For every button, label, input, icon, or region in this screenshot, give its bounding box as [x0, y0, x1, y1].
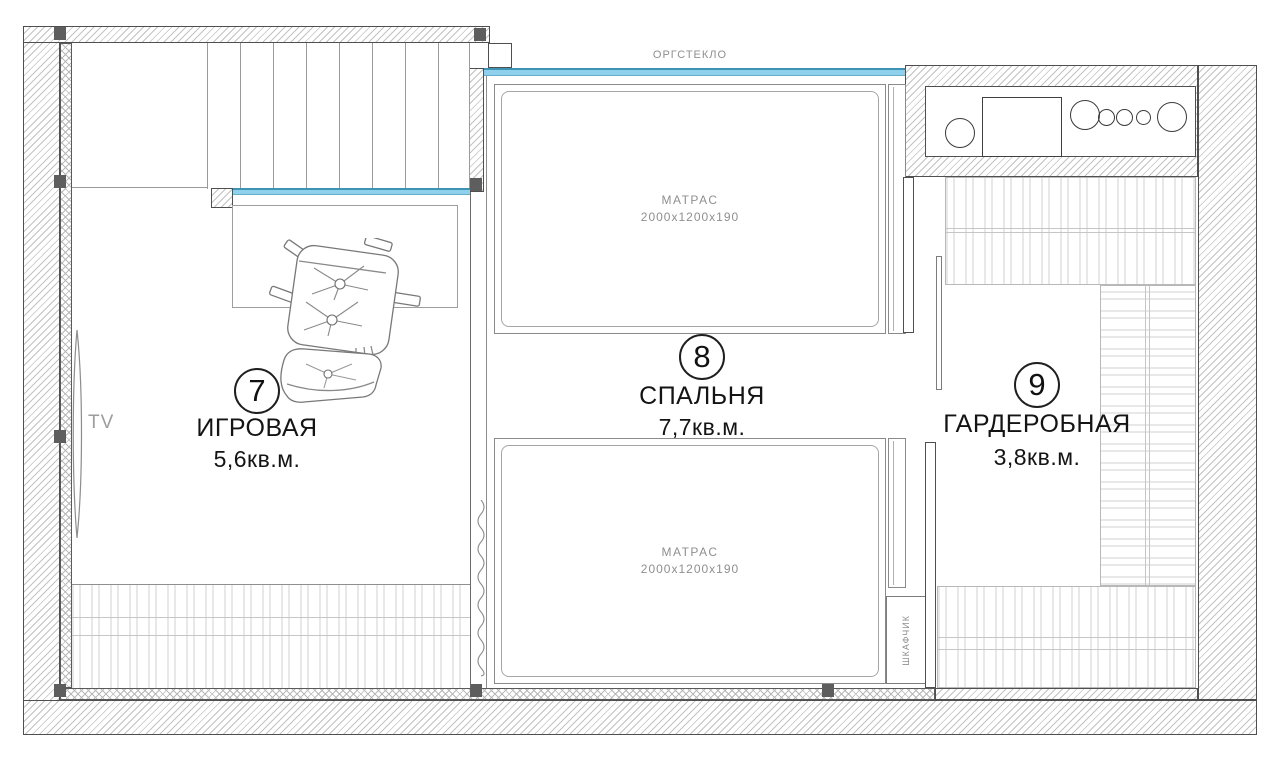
- curtain-squiggle: [472, 500, 490, 678]
- mattress-top: МАТРАС 2000х1200х190: [501, 91, 879, 327]
- rack-rail: [938, 637, 1195, 638]
- column: [54, 684, 66, 697]
- wall-stair-stub: [211, 188, 233, 208]
- mattress-bottom-label: МАТРАС: [662, 544, 719, 561]
- room-area-bedroom: 7,7кв.м.: [602, 414, 802, 441]
- bedside-shelf-bottom: [888, 438, 906, 588]
- column: [54, 430, 66, 443]
- column: [822, 684, 834, 697]
- mattress-top-label: МАТРАС: [662, 192, 719, 209]
- counter-circle-2: [1098, 109, 1115, 126]
- counter-circle-4: [1136, 110, 1151, 125]
- divider-playroom-bedroom: [470, 192, 471, 688]
- wall-step-box: [488, 43, 512, 68]
- rack-rail: [1149, 286, 1150, 585]
- wardrobe-rack-bottom: [937, 586, 1196, 688]
- room-area-playroom: 5,6кв.м.: [157, 446, 357, 473]
- room-name-bedroom: СПАЛЬНЯ: [602, 382, 802, 411]
- wardrobe-door-leaf: [936, 256, 942, 390]
- wall-right: [1198, 65, 1257, 700]
- mattress-top-size: 2000х1200х190: [641, 209, 739, 226]
- counter-circle-3: [1116, 109, 1133, 126]
- counter-circle-1: [1070, 100, 1100, 130]
- counter-circle-5: [1157, 102, 1187, 132]
- wall-left: [23, 26, 60, 735]
- floor-plan: ОРГСТЕКЛО TV: [0, 0, 1280, 764]
- wall-segment-wardrobe-lower: [925, 442, 936, 688]
- swivel-chairs-and-pouf: [268, 238, 426, 410]
- room-number-playroom: 7: [234, 368, 280, 414]
- room-name-wardrobe: ГАРДЕРОБНАЯ: [927, 410, 1147, 439]
- room-number-wardrobe: 9: [1014, 362, 1060, 408]
- mattress-bottom: МАТРАС 2000х1200х190: [501, 445, 879, 677]
- bedside-shelf-line: [893, 87, 894, 331]
- small-cabinet-label: ШКАФЧИК: [901, 615, 911, 666]
- stairs: [207, 43, 470, 189]
- counter-appliance-square: [982, 97, 1062, 157]
- room-number-bedroom: 8: [679, 334, 725, 380]
- column: [470, 684, 482, 697]
- glass-partition-label: ОРГСТЕКЛО: [600, 49, 780, 61]
- wall-bedroom-pillar: [469, 68, 484, 192]
- column: [470, 178, 482, 191]
- wall-segment-wardrobe-upper: [903, 177, 914, 333]
- storage-rail: [72, 617, 470, 618]
- rack-rail: [938, 649, 1195, 650]
- column: [54, 175, 66, 188]
- counter-sink-circle: [945, 118, 975, 148]
- room-area-wardrobe: 3,8кв.м.: [927, 444, 1147, 471]
- glass-partition: [484, 68, 905, 76]
- small-cabinet: ШКАФЧИК: [886, 596, 926, 684]
- playroom-storage: [72, 584, 470, 688]
- column: [54, 27, 66, 40]
- stair-landing: [72, 43, 207, 188]
- wall-top: [23, 26, 490, 43]
- wardrobe-rack-top: [945, 177, 1196, 285]
- rack-rail: [946, 228, 1195, 229]
- bedside-shelf-line: [893, 441, 894, 585]
- tv-label: TV: [88, 412, 114, 434]
- mattress-bottom-size: 2000х1200х190: [641, 561, 739, 578]
- wall-bottom: [23, 700, 1257, 735]
- stair-glass-rail: [233, 188, 470, 195]
- storage-rail: [72, 635, 470, 636]
- wall-strip-bottom-right: [935, 688, 1198, 700]
- room-name-playroom: ИГРОВАЯ: [157, 414, 357, 443]
- column: [474, 28, 486, 41]
- tv-icon: [68, 328, 92, 540]
- rack-rail: [946, 232, 1195, 233]
- wall-strip-bottom: [60, 688, 935, 700]
